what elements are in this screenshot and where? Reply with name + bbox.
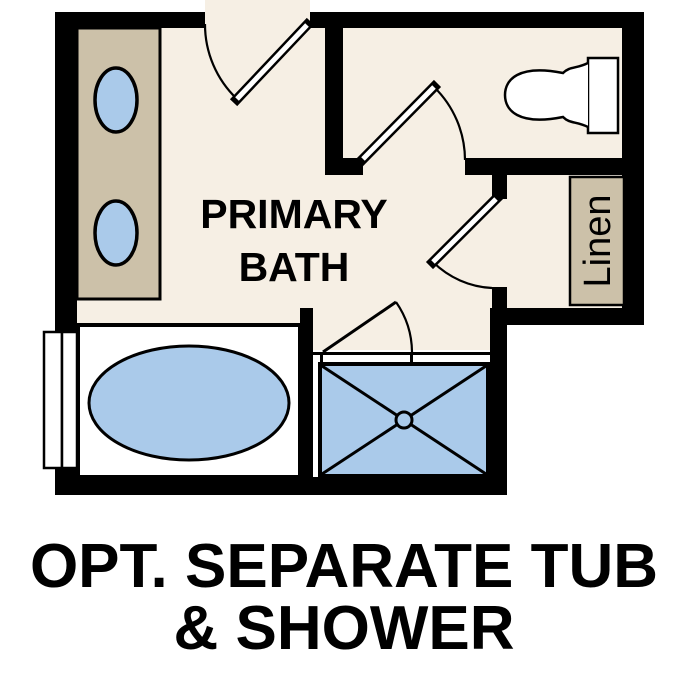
- wall-left-upper: [55, 12, 77, 332]
- window-outer-pane: [44, 332, 62, 468]
- shower-front-line: [313, 352, 490, 355]
- wall-wc-divider: [325, 26, 343, 160]
- toilet-tank: [588, 58, 618, 133]
- sink-basin-top: [95, 68, 137, 132]
- floorplan-drawing: PRIMARY BATH Linen OPT. SEPARATE TUB & S…: [0, 0, 687, 687]
- window-inner-pane: [62, 332, 77, 468]
- room-label-line1: PRIMARY: [200, 191, 388, 237]
- caption-line2: & SHOWER: [174, 594, 515, 663]
- wall-top-left: [55, 12, 205, 28]
- wall-below-wc: [465, 158, 644, 175]
- floorplan-canvas: PRIMARY BATH Linen OPT. SEPARATE TUB & S…: [0, 0, 687, 687]
- sink-basin-bottom: [95, 201, 137, 265]
- tub-basin: [89, 346, 289, 460]
- wall-wc-foot: [325, 158, 363, 175]
- wall-shower-right: [490, 308, 507, 495]
- linen-label: Linen: [577, 195, 619, 288]
- caption-line1: OPT. SEPARATE TUB: [30, 532, 658, 601]
- wall-linen-bottom: [492, 308, 644, 325]
- wall-top-right: [310, 12, 644, 28]
- wall-bottom: [55, 477, 507, 495]
- room-label-line2: BATH: [239, 244, 350, 290]
- shower-drain: [396, 412, 412, 428]
